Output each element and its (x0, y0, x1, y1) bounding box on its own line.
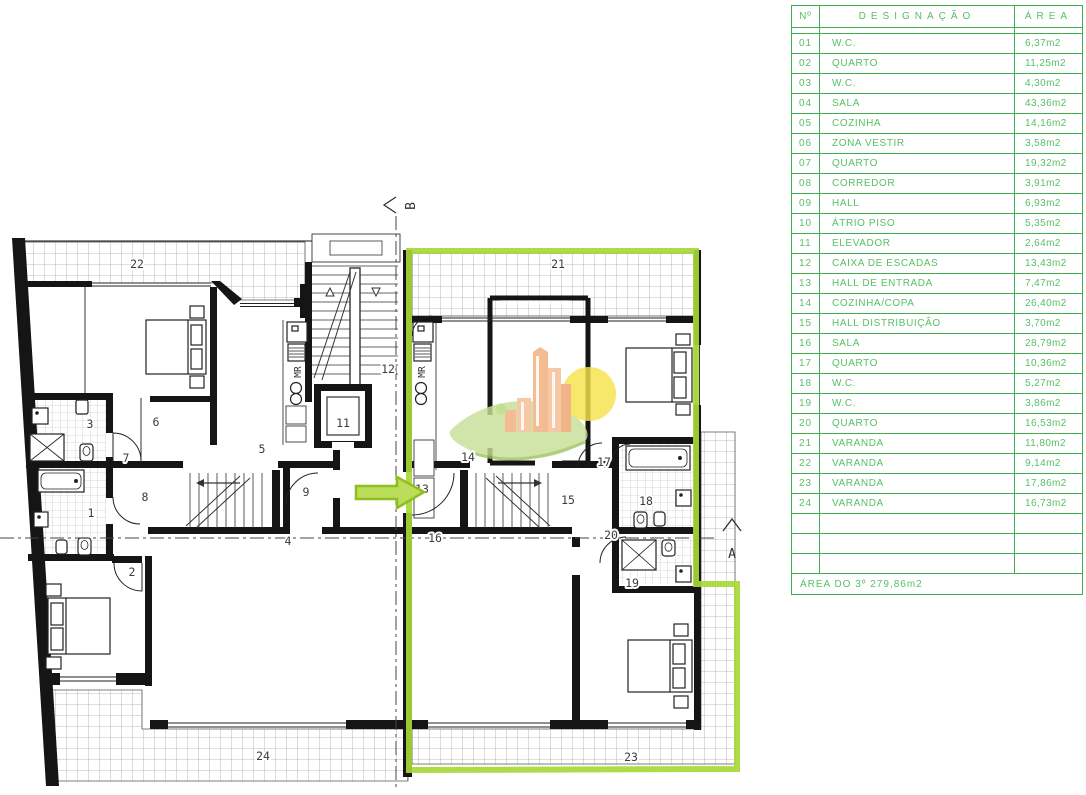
row-number: 20 (792, 414, 820, 434)
table-row: 24VARANDA16,73m2 (792, 494, 1083, 514)
table-row: 06ZONA VESTIR3,58m2 (792, 134, 1083, 154)
table-row: 01W.C.6,37m2 (792, 34, 1083, 54)
table-row: 16SALA28,79m2 (792, 334, 1083, 354)
row-area: 6,37m2 (1015, 34, 1083, 54)
table-row: 17QUARTO10,36m2 (792, 354, 1083, 374)
table-header-row: Nº DESIGNAÇÃO ÁREA (792, 6, 1083, 28)
table-row: 12CAIXA DE ESCADAS13,43m2 (792, 254, 1083, 274)
table-row: 21VARANDA11,80m2 (792, 434, 1083, 454)
table-row: 09HALL6,93m2 (792, 194, 1083, 214)
row-area: 6,93m2 (1015, 194, 1083, 214)
row-area: 19,32m2 (1015, 154, 1083, 174)
table-row: 07QUARTO19,32m2 (792, 154, 1083, 174)
row-number: 16 (792, 334, 820, 354)
row-designation: CORREDOR (820, 174, 1015, 194)
row-area: 17,86m2 (1015, 474, 1083, 494)
row-number: 05 (792, 114, 820, 134)
room-number-label: 12 (381, 362, 395, 376)
table-row: 22VARANDA9,14m2 (792, 454, 1083, 474)
areas-table-body: Nº DESIGNAÇÃO ÁREA 01W.C.6,37m202QUARTO1… (792, 6, 1083, 595)
row-area: 3,86m2 (1015, 394, 1083, 414)
table-empty-row (792, 514, 1083, 534)
row-designation: W.C. (820, 34, 1015, 54)
row-area: 11,80m2 (1015, 434, 1083, 454)
row-designation: CAIXA DE ESCADAS (820, 254, 1015, 274)
row-number: 10 (792, 214, 820, 234)
table-empty-row (792, 554, 1083, 574)
row-designation: ELEVADOR (820, 234, 1015, 254)
table-row: 20QUARTO16,53m2 (792, 414, 1083, 434)
row-designation: HALL DE ENTRADA (820, 274, 1015, 294)
row-designation: SALA (820, 334, 1015, 354)
room-number-label: 8 (142, 490, 149, 504)
row-area: 2,64m2 (1015, 234, 1083, 254)
room-number-label: 16 (428, 531, 442, 545)
room-number-label: 21 (551, 257, 565, 271)
row-designation: HALL DISTRIBUIÇÃO (820, 314, 1015, 334)
row-designation: ZONA VESTIR (820, 134, 1015, 154)
header-designacao: DESIGNAÇÃO (820, 6, 1015, 28)
room-number-label: 17 (597, 455, 611, 469)
row-area: 26,40m2 (1015, 294, 1083, 314)
row-number: 18 (792, 374, 820, 394)
row-area: 16,73m2 (1015, 494, 1083, 514)
row-designation: COZINHA (820, 114, 1015, 134)
table-row: 03W.C.4,30m2 (792, 74, 1083, 94)
room-number-label: 6 (153, 415, 160, 429)
section-marker-a-label: A (728, 547, 736, 562)
row-area: 13,43m2 (1015, 254, 1083, 274)
table-row: 15HALL DISTRIBUIÇÃO3,70m2 (792, 314, 1083, 334)
table-row: 14COZINHA/COPA26,40m2 (792, 294, 1083, 314)
row-designation: HALL (820, 194, 1015, 214)
row-number: 03 (792, 74, 820, 94)
room-number-label: 22 (130, 257, 144, 271)
row-area: 43,36m2 (1015, 94, 1083, 114)
row-number: 11 (792, 234, 820, 254)
room-number-label: 19 (625, 576, 639, 590)
row-area: 5,27m2 (1015, 374, 1083, 394)
room-number-label: 7 (123, 451, 130, 465)
row-number: 02 (792, 54, 820, 74)
total-area-label: ÁREA DO 3º 279,86m2 (792, 574, 1083, 595)
row-area: 3,91m2 (1015, 174, 1083, 194)
row-designation: VARANDA (820, 454, 1015, 474)
row-designation: QUARTO (820, 54, 1015, 74)
row-designation: VARANDA (820, 494, 1015, 514)
bed-icon (628, 624, 692, 708)
room-number-label: 14 (461, 450, 475, 464)
header-area: ÁREA (1015, 6, 1083, 28)
row-number: 14 (792, 294, 820, 314)
row-number: 07 (792, 154, 820, 174)
logo-dot-icon (496, 404, 507, 415)
row-area: 4,30m2 (1015, 74, 1083, 94)
table-row: 04SALA43,36m2 (792, 94, 1083, 114)
room-number-label: 1 (88, 506, 95, 520)
row-designation: SALA (820, 94, 1015, 114)
row-area: 11,25m2 (1015, 54, 1083, 74)
table-row: 10ÁTRIO PISO5,35m2 (792, 214, 1083, 234)
row-area: 3,70m2 (1015, 314, 1083, 334)
row-number: 09 (792, 194, 820, 214)
room-number-label: 11 (336, 416, 350, 430)
row-designation: W.C. (820, 74, 1015, 94)
row-area: 28,79m2 (1015, 334, 1083, 354)
row-number: 01 (792, 34, 820, 54)
appliance-mr-label: MR (293, 366, 304, 378)
row-area: 9,14m2 (1015, 454, 1083, 474)
room-number-label: 15 (561, 493, 575, 507)
row-number: 19 (792, 394, 820, 414)
row-designation: W.C. (820, 394, 1015, 414)
table-row: 23VARANDA17,86m2 (792, 474, 1083, 494)
row-number: 06 (792, 134, 820, 154)
room-number-label: 4 (285, 534, 292, 548)
header-no: Nº (792, 6, 820, 28)
bed-icon (146, 306, 206, 388)
areas-table: Nº DESIGNAÇÃO ÁREA 01W.C.6,37m202QUARTO1… (791, 5, 1082, 595)
table-footer-row: ÁREA DO 3º 279,86m2 (792, 574, 1083, 595)
room-number-label: 23 (624, 750, 638, 764)
table-row: 05COZINHA14,16m2 (792, 114, 1083, 134)
row-area: 7,47m2 (1015, 274, 1083, 294)
row-designation: VARANDA (820, 474, 1015, 494)
row-number: 08 (792, 174, 820, 194)
row-designation: COZINHA/COPA (820, 294, 1015, 314)
room-number-label: 18 (639, 494, 653, 508)
room-number-label: 9 (303, 485, 310, 499)
row-area: 10,36m2 (1015, 354, 1083, 374)
row-number: 21 (792, 434, 820, 454)
room-number-label: 24 (256, 749, 270, 763)
row-designation: QUARTO (820, 414, 1015, 434)
section-marker-b-label: B (404, 202, 419, 210)
room-number-label: 2 (129, 565, 136, 579)
bed-icon (626, 334, 692, 415)
section-marker-b: B (384, 197, 419, 213)
table-row: 18W.C.5,27m2 (792, 374, 1083, 394)
row-area: 3,58m2 (1015, 134, 1083, 154)
row-designation: VARANDA (820, 434, 1015, 454)
stairs-internal-right-icon (476, 473, 550, 528)
row-number: 13 (792, 274, 820, 294)
row-area: 5,35m2 (1015, 214, 1083, 234)
row-designation: QUARTO (820, 154, 1015, 174)
bed-icon (46, 584, 110, 669)
row-area: 14,16m2 (1015, 114, 1083, 134)
row-number: 17 (792, 354, 820, 374)
table-row: 11ELEVADOR2,64m2 (792, 234, 1083, 254)
row-number: 24 (792, 494, 820, 514)
room-number-label: 20 (604, 528, 618, 542)
room-number-label: 3 (87, 417, 94, 431)
row-number: 04 (792, 94, 820, 114)
row-number: 23 (792, 474, 820, 494)
row-number: 12 (792, 254, 820, 274)
row-designation: ÁTRIO PISO (820, 214, 1015, 234)
table-row: 19W.C.3,86m2 (792, 394, 1083, 414)
table-empty-row (792, 534, 1083, 554)
table-row: 08CORREDOR3,91m2 (792, 174, 1083, 194)
watermark-logo (450, 347, 616, 459)
table-row: 13HALL DE ENTRADA7,47m2 (792, 274, 1083, 294)
row-number: 15 (792, 314, 820, 334)
row-number: 22 (792, 454, 820, 474)
table-row: 02QUARTO11,25m2 (792, 54, 1083, 74)
row-designation: W.C. (820, 374, 1015, 394)
row-area: 16,53m2 (1015, 414, 1083, 434)
appliance-mr-label: MR (417, 366, 428, 378)
room-number-label: 5 (259, 442, 266, 456)
row-designation: QUARTO (820, 354, 1015, 374)
stairs-internal-left-icon (186, 473, 262, 528)
